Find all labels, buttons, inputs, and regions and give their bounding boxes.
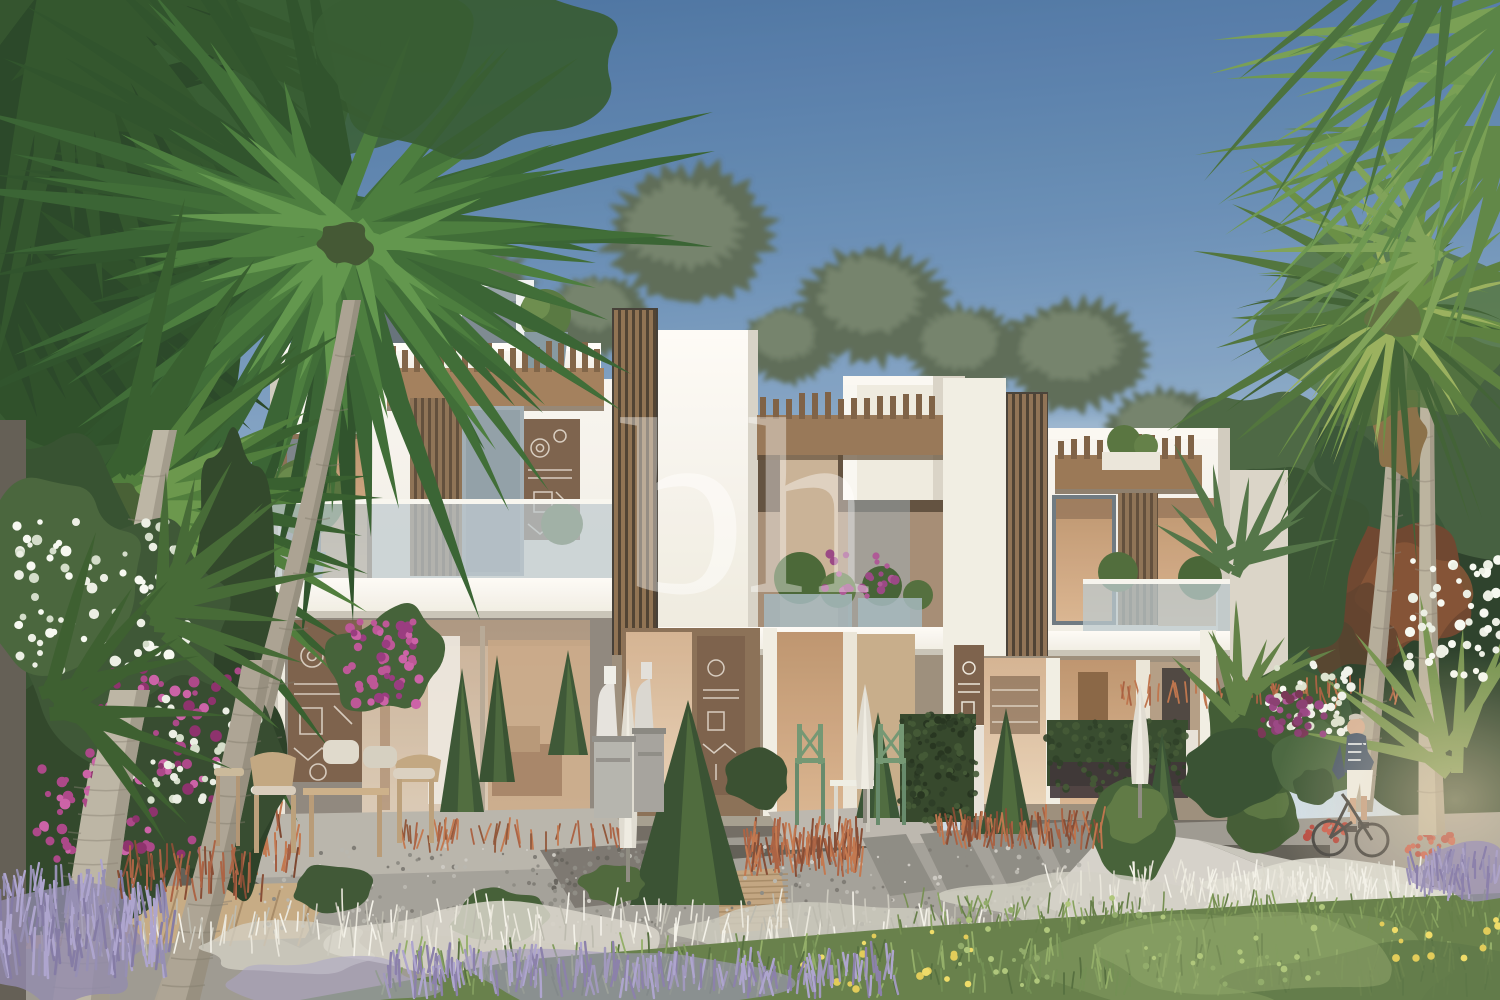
svg-text:bh: bh bbox=[620, 367, 872, 647]
